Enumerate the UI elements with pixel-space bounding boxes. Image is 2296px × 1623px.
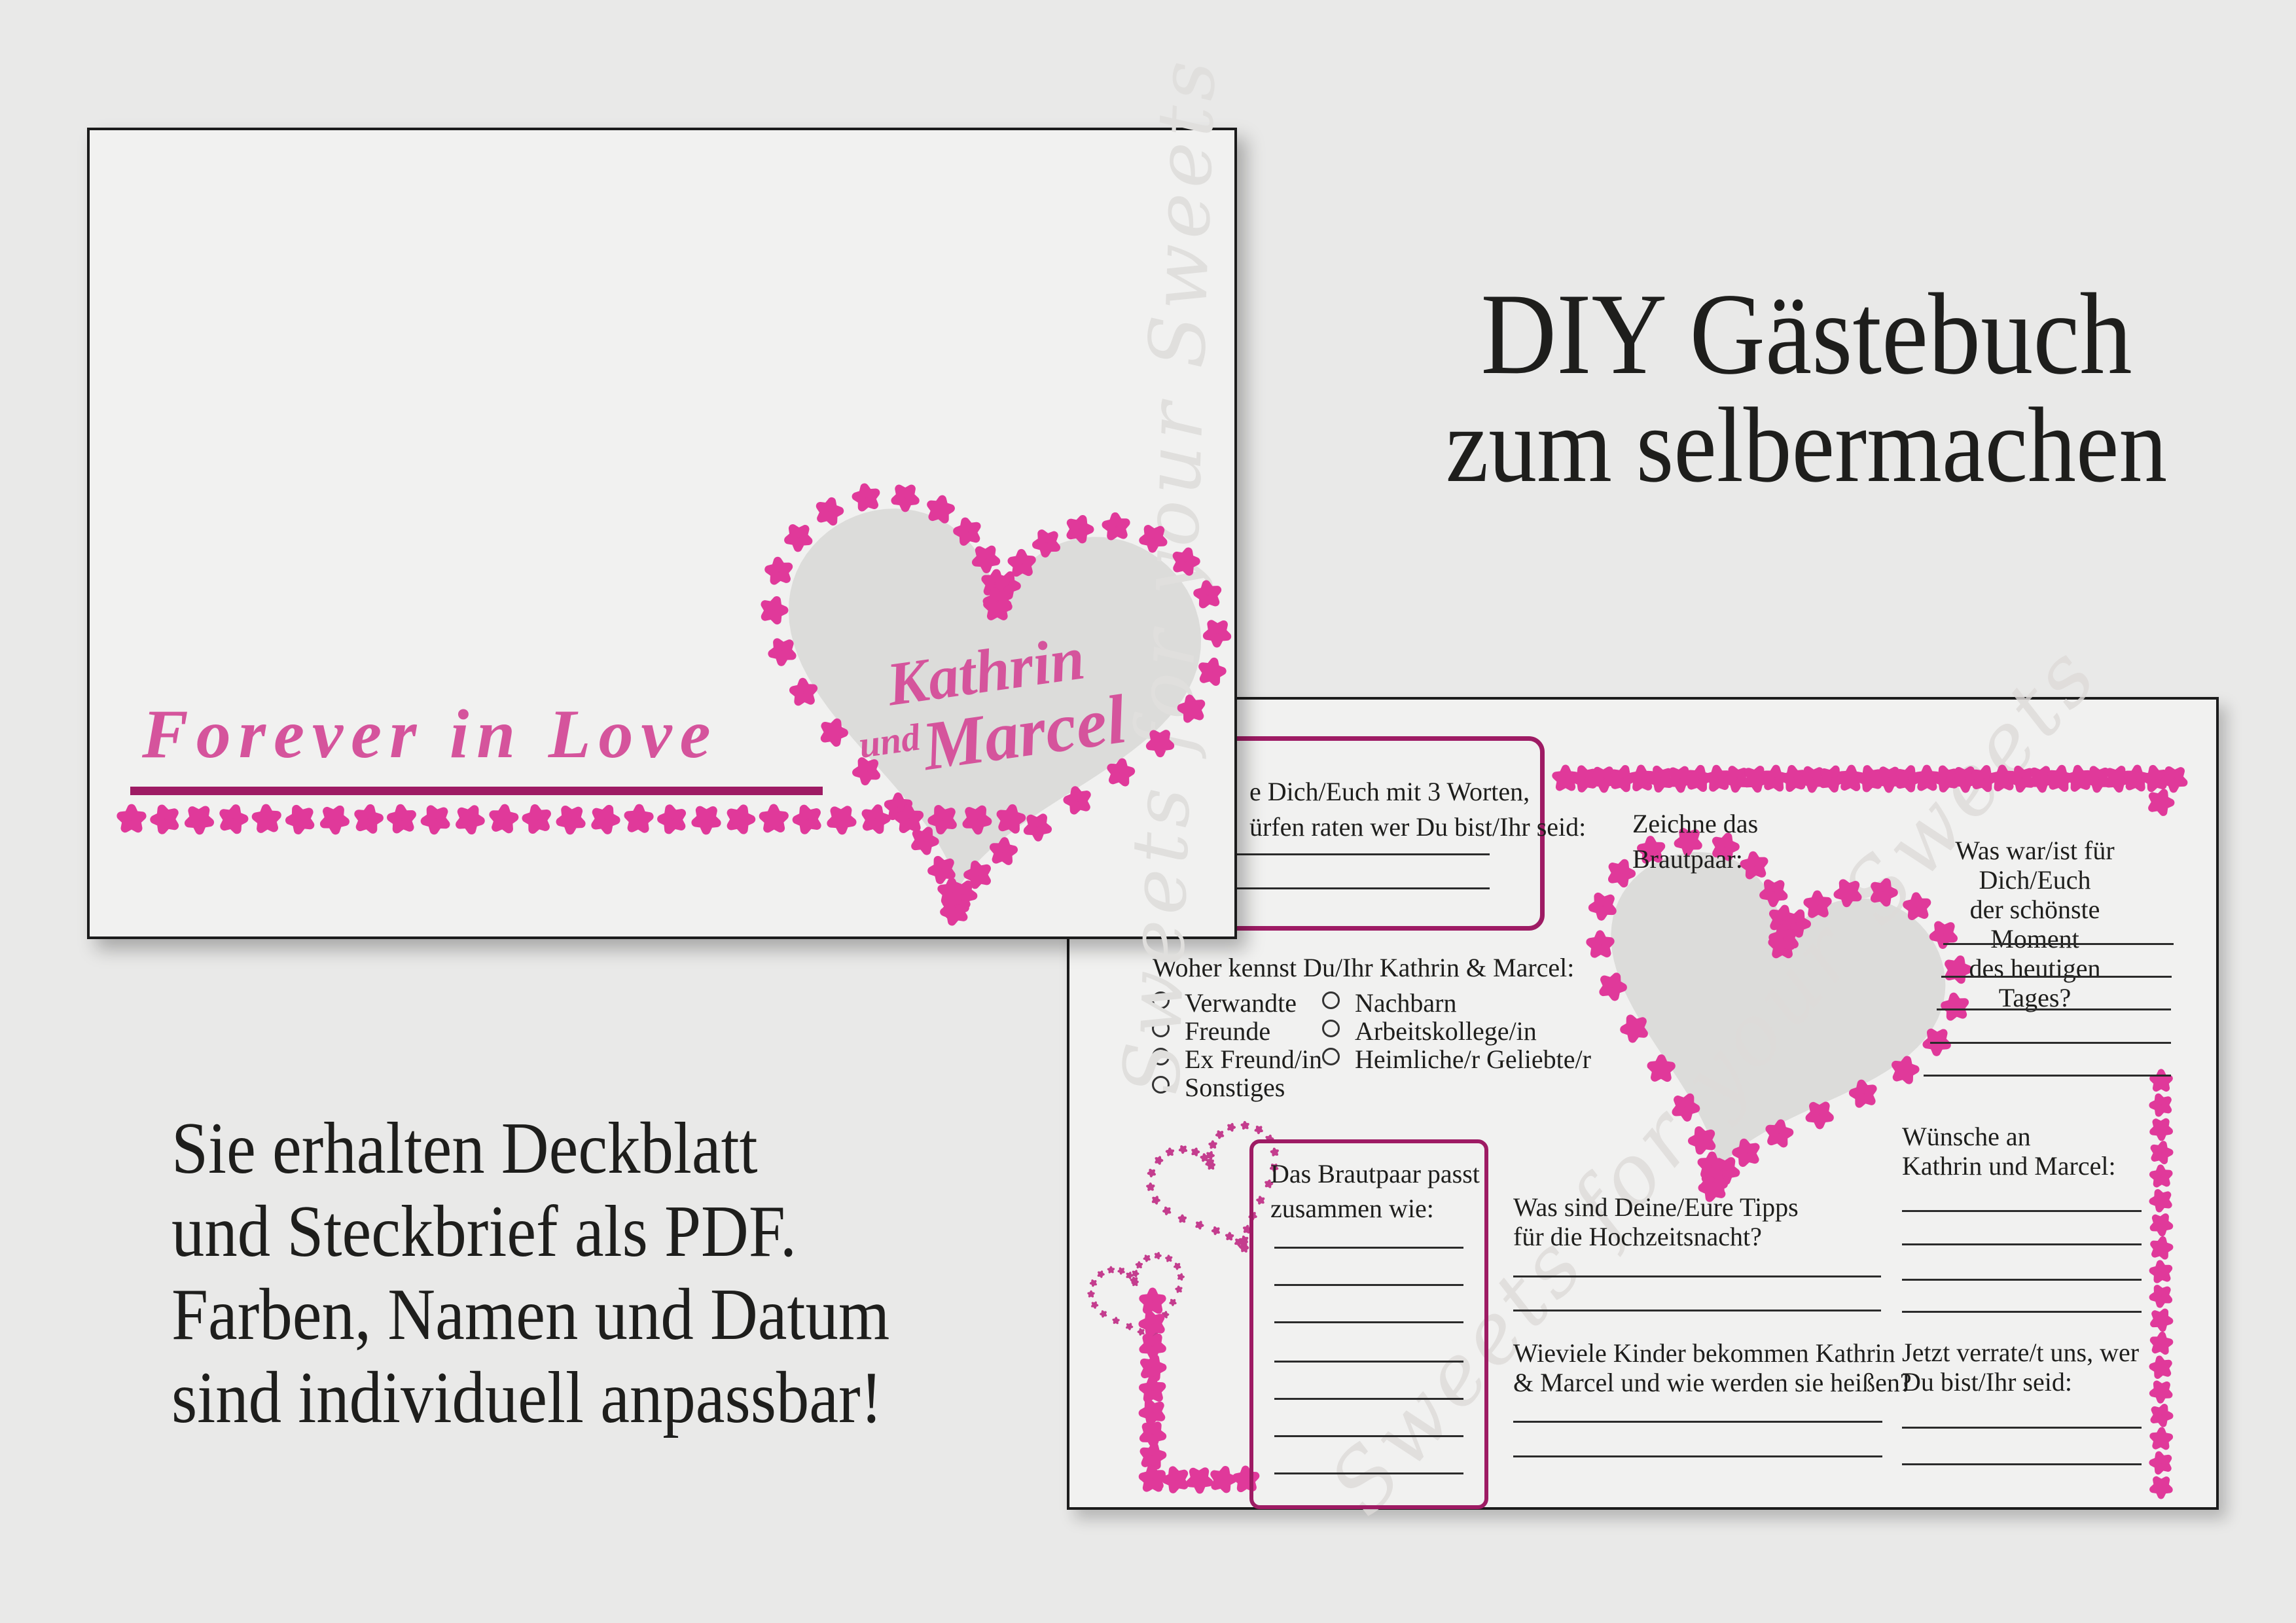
page-title-line1: DIY Gästebuch — [1429, 277, 2183, 390]
radio-button-nachbarn[interactable] — [1322, 991, 1340, 1009]
wishes-line2: Kathrin und Marcel: — [1902, 1151, 2116, 1181]
radio-button-ex-freund[interactable] — [1152, 1048, 1170, 1065]
answer-line — [1902, 1210, 2142, 1212]
radio-button-heimliche-geliebte[interactable] — [1322, 1048, 1340, 1065]
moment-line3: des heutigen Tages? — [1945, 954, 2126, 1012]
children-line2: & Marcel und wie werden sie heißen? — [1513, 1368, 1912, 1397]
draw-question-line2: Brautpaar: — [1632, 844, 1743, 874]
answer-line — [1513, 1310, 1881, 1311]
draw-question-line1: Zeichne das — [1632, 809, 1758, 838]
tips-line1: Was sind Deine/Eure Tipps — [1513, 1192, 1799, 1222]
tips-line2: für die Hochzeitsnacht? — [1513, 1222, 1799, 1251]
answer-line — [1902, 1427, 2142, 1429]
answer-line — [1274, 1321, 1463, 1323]
radio-label-arbeitskollege: Arbeitskollege/in — [1355, 1016, 1537, 1046]
moment-question: Was war/ist für Dich/Euch der schönste M… — [1945, 836, 2126, 1012]
answer-line — [1902, 1311, 2142, 1313]
radio-label-nachbarn: Nachbarn — [1355, 988, 1456, 1018]
answer-line — [1902, 1243, 2142, 1245]
radio-button-freunde[interactable] — [1152, 1020, 1170, 1037]
names-conjunction: und — [856, 715, 923, 766]
reveal-question: Jetzt verrate/t uns, wer Du bist/Ihr sei… — [1902, 1338, 2139, 1397]
children-line1: Wieviele Kinder bekommen Kathrin — [1513, 1338, 1912, 1368]
note-line3: Farben, Namen und Datum — [171, 1274, 889, 1357]
describe-question-line2: ürfen raten wer Du bist/Ihr seid: — [1249, 812, 1586, 842]
match-question: Das Brautpaar passt zusammen wie: — [1270, 1156, 1480, 1226]
radio-label-verwandte: Verwandte — [1185, 988, 1297, 1018]
answer-line — [1274, 1284, 1463, 1286]
canvas: Sweets for your Sweets e Dich/Euch mit 3… — [0, 0, 2296, 1623]
cover-page: Sweets for your Sweets Forever in Love K… — [87, 128, 1237, 939]
note-line2: und Steckbrief als PDF. — [171, 1190, 889, 1274]
answer-line — [1902, 1279, 2142, 1281]
tips-question: Was sind Deine/Eure Tipps für die Hochze… — [1513, 1192, 1799, 1251]
answer-line — [1274, 1361, 1463, 1363]
star-decorations — [90, 130, 1234, 936]
answer-line — [1513, 1275, 1881, 1277]
product-note: Sie erhalten Deckblatt und Steckbrief al… — [171, 1107, 889, 1440]
title-underline — [130, 787, 823, 795]
page-title: DIY Gästebuch zum selbermachen — [1429, 277, 2183, 495]
answer-line — [1943, 943, 2174, 945]
radio-button-verwandte[interactable] — [1152, 991, 1170, 1009]
answer-line — [1274, 1398, 1463, 1400]
wishes-line1: Wünsche an — [1902, 1122, 2116, 1151]
match-line2: zusammen wie: — [1270, 1191, 1480, 1226]
steckbrief-page: Sweets for your Sweets e Dich/Euch mit 3… — [1067, 697, 2219, 1510]
cover-title: Forever in Love — [142, 694, 719, 774]
answer-line — [1941, 976, 2172, 978]
radio-label-sonstiges: Sonstiges — [1185, 1073, 1285, 1102]
match-line1: Das Brautpaar passt — [1270, 1156, 1480, 1191]
describe-question-line1: e Dich/Euch mit 3 Worten, — [1249, 777, 1530, 806]
wishes-question: Wünsche an Kathrin und Marcel: — [1902, 1122, 2116, 1181]
moment-line1: Was war/ist für Dich/Euch — [1945, 836, 2126, 895]
radio-button-sonstiges[interactable] — [1152, 1076, 1170, 1094]
answer-line — [1924, 1075, 2171, 1077]
answer-line — [1274, 1472, 1463, 1474]
children-question: Wieviele Kinder bekommen Kathrin & Marce… — [1513, 1338, 1912, 1397]
radio-label-ex-freund: Ex Freund/in — [1185, 1044, 1322, 1074]
answer-line — [1937, 1008, 2171, 1010]
page-title-line2: zum selbermachen — [1429, 397, 2183, 495]
know-question-heading: Woher kennst Du/Ihr Kathrin & Marcel: — [1153, 953, 1574, 982]
radio-button-arbeitskollege[interactable] — [1322, 1020, 1340, 1037]
note-line1: Sie erhalten Deckblatt — [171, 1107, 889, 1190]
note-line4: sind individuell anpassbar! — [171, 1357, 889, 1440]
answer-line — [1274, 1435, 1463, 1437]
radio-label-freunde: Freunde — [1185, 1016, 1270, 1046]
answer-line — [1513, 1421, 1882, 1423]
radio-label-heimliche-geliebte: Heimliche/r Geliebte/r — [1355, 1044, 1591, 1074]
reveal-line1: Jetzt verrate/t uns, wer — [1902, 1338, 2139, 1367]
answer-line — [1513, 1455, 1882, 1457]
answer-line — [1902, 1463, 2142, 1465]
reveal-line2: Du bist/Ihr seid: — [1902, 1367, 2139, 1397]
answer-line — [1274, 1247, 1463, 1249]
answer-line — [1930, 1042, 2171, 1044]
